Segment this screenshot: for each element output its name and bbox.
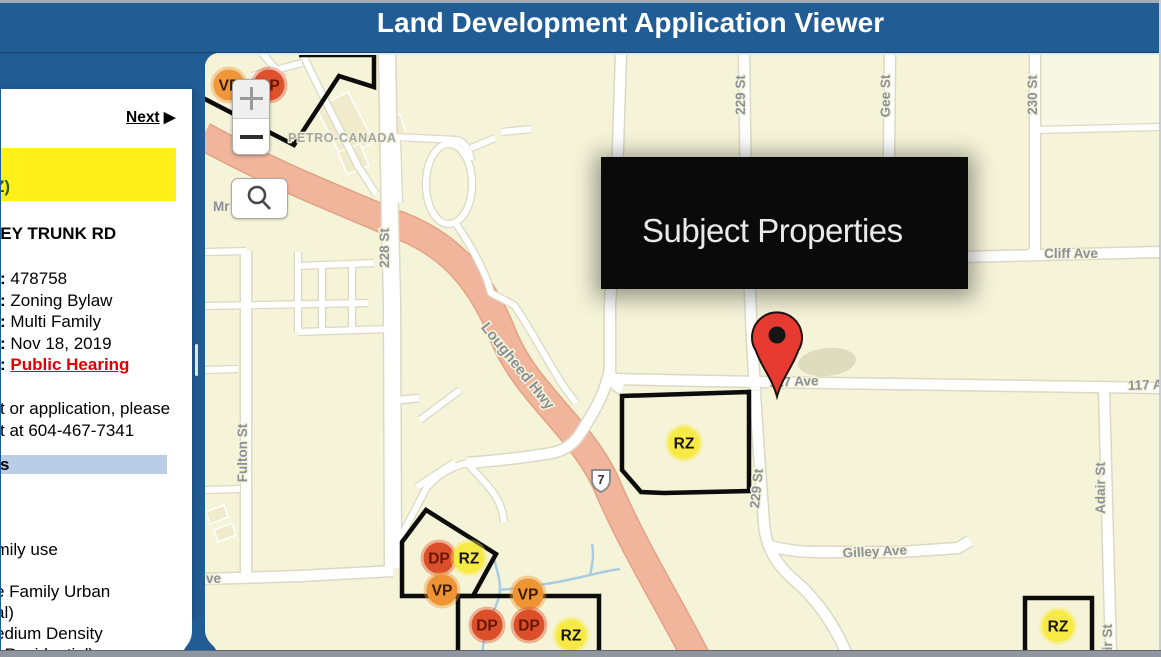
svg-text:RZ: RZ — [674, 436, 695, 453]
svg-text:117 Av: 117 Av — [1128, 377, 1159, 393]
svg-text:DP: DP — [428, 551, 450, 568]
svg-text:DP: DP — [476, 618, 498, 635]
svg-text:Cliff Ave: Cliff Ave — [1044, 246, 1098, 261]
svg-text:Adair St: Adair St — [1093, 462, 1108, 514]
svg-text:RZ: RZ — [561, 628, 582, 645]
svg-text:PETRO-CANADA: PETRO-CANADA — [288, 131, 397, 145]
svg-text:Fulton St: Fulton St — [235, 423, 250, 482]
svg-text:Adair St: Adair St — [1100, 624, 1115, 650]
svg-text:230 St: 230 St — [1025, 75, 1040, 115]
svg-text:228 St: 228 St — [377, 228, 392, 268]
svg-text:7: 7 — [597, 472, 604, 487]
svg-text:RZ: RZ — [459, 551, 480, 568]
svg-text:Gee St: Gee St — [878, 74, 893, 117]
svg-text:VP: VP — [432, 583, 453, 600]
svg-text:229 St: 229 St — [733, 75, 748, 115]
svg-text:RZ: RZ — [1048, 619, 1069, 636]
svg-text:Mr: Mr — [213, 199, 230, 214]
svg-text:ve: ve — [206, 571, 222, 586]
svg-text:VP: VP — [518, 587, 539, 604]
svg-text:DP: DP — [518, 618, 540, 635]
